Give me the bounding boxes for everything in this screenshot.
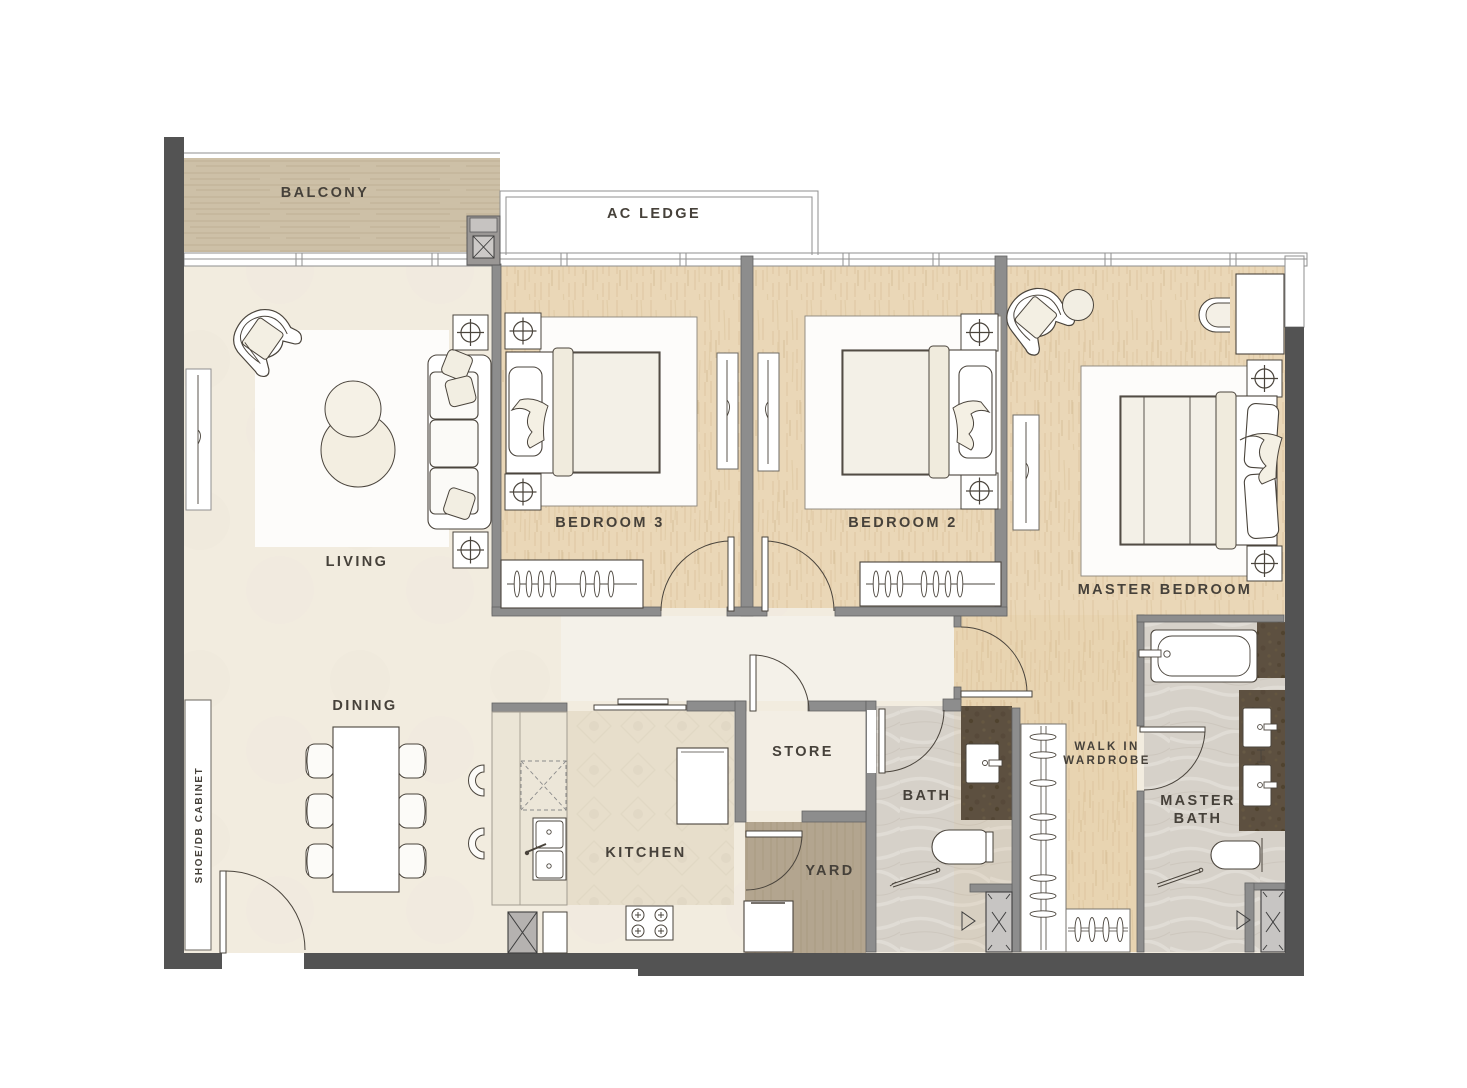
svg-text:BEDROOM 3: BEDROOM 3 (555, 515, 664, 531)
svg-text:WALK IN: WALK IN (1074, 741, 1139, 753)
svg-text:AC LEDGE: AC LEDGE (607, 206, 701, 222)
svg-text:LIVING: LIVING (326, 554, 389, 570)
svg-text:MASTER BEDROOM: MASTER BEDROOM (1078, 582, 1253, 598)
svg-text:BATH: BATH (903, 788, 952, 804)
svg-text:BEDROOM 2: BEDROOM 2 (848, 515, 957, 531)
svg-text:SHOE/DB CABINET: SHOE/DB CABINET (194, 767, 205, 884)
svg-text:KITCHEN: KITCHEN (605, 845, 686, 861)
svg-text:BALCONY: BALCONY (281, 185, 370, 201)
svg-text:DINING: DINING (332, 698, 397, 714)
svg-text:MASTER: MASTER (1160, 793, 1236, 809)
svg-text:BATH: BATH (1174, 811, 1223, 827)
svg-text:STORE: STORE (772, 744, 834, 760)
svg-text:YARD: YARD (805, 863, 854, 879)
svg-text:WARDROBE: WARDROBE (1063, 755, 1151, 767)
